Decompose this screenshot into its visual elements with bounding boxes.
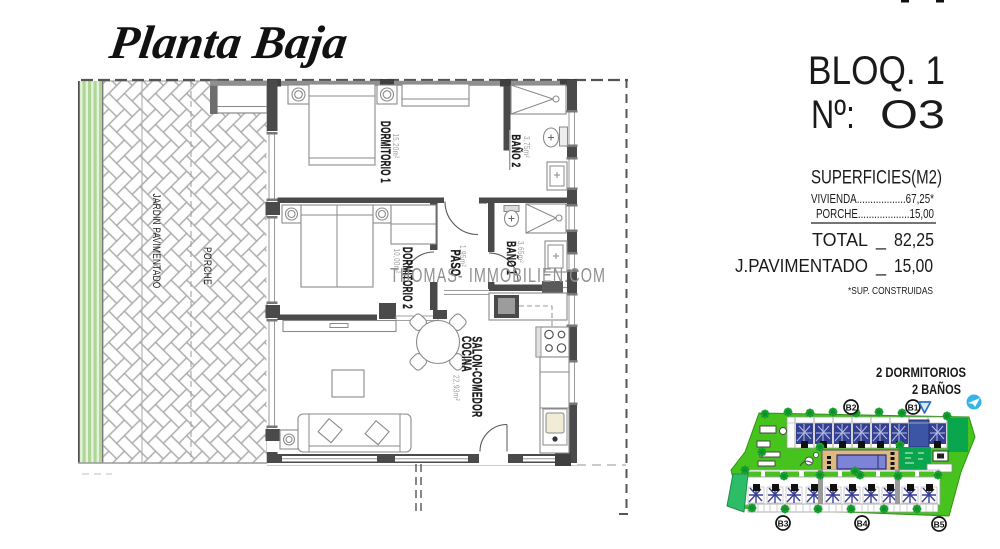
svg-text:_: _ [875, 256, 887, 277]
svg-text:BAÑO 2: BAÑO 2 [509, 135, 522, 168]
svg-text:B1: B1 [908, 402, 919, 412]
svg-text:15,00: 15,00 [894, 256, 933, 276]
svg-text:15,20m²: 15,20m² [391, 134, 401, 159]
svg-text:B4: B4 [857, 518, 868, 528]
svg-text:O3: O3 [880, 93, 945, 137]
svg-text:82,25: 82,25 [894, 230, 934, 250]
svg-text:SALON-COMEDOR: SALON-COMEDOR [470, 337, 485, 418]
svg-text:*SUP. CONSTRUIDAS: *SUP. CONSTRUIDAS [848, 286, 933, 297]
svg-text:2 DORMITORIOS: 2 DORMITORIOS [876, 364, 966, 380]
svg-text:J.PAVIMENTADO: J.PAVIMENTADO [735, 256, 868, 276]
svg-text:B2: B2 [846, 402, 857, 412]
svg-text:PORCHE: PORCHE [201, 247, 213, 285]
svg-text:_: _ [875, 230, 887, 251]
svg-text:3,75m²: 3,75m² [522, 136, 531, 158]
svg-text:VIVIENDA..................67,2: VIVIENDA..................67,25* [811, 192, 934, 206]
svg-text:THOMAS- IMMOBILIEN.COM: THOMAS- IMMOBILIEN.COM [390, 264, 606, 287]
svg-text:B5: B5 [934, 519, 945, 529]
svg-text:BLOQ. 1: BLOQ. 1 [808, 49, 945, 93]
svg-text:3,65m²: 3,65m² [516, 241, 525, 263]
svg-text:B3: B3 [778, 518, 789, 528]
svg-text:22,93m²: 22,93m² [452, 375, 462, 401]
svg-text:PORCHE...................15,00: PORCHE...................15,00 [816, 207, 934, 221]
svg-text:Nº:: Nº: [811, 93, 855, 137]
svg-text:SUPERFICIES(M2): SUPERFICIES(M2) [811, 168, 942, 189]
svg-text:TOTAL: TOTAL [812, 230, 868, 250]
svg-text:DORMITORIO 1: DORMITORIO 1 [378, 121, 393, 183]
svg-text:2 BAÑOS: 2 BAÑOS [912, 380, 961, 397]
svg-text:Planta Baja: Planta Baja [105, 17, 350, 69]
svg-text:JARDIN PAVIMENTADO: JARDIN PAVIMENTADO [150, 194, 162, 289]
